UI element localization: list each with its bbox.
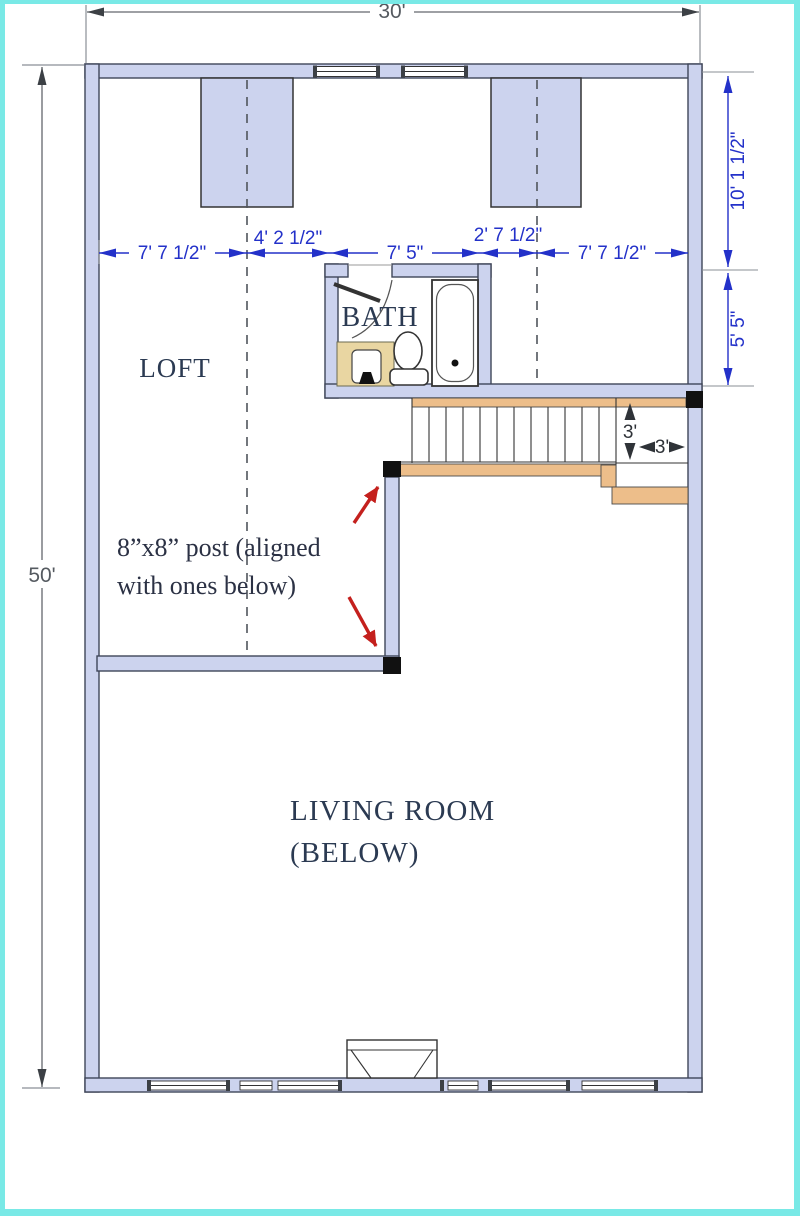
arrowhead-up xyxy=(38,67,47,85)
dimension-row: 7' 7 1/2" 4' 2 1/2" 7' 5" 2' 7 1/2" 7' 7… xyxy=(99,225,688,264)
arrowhead-right xyxy=(682,8,699,17)
dim-label-1: 7' 7 1/2" xyxy=(138,243,206,264)
window-cap xyxy=(654,1080,658,1091)
arrowhead xyxy=(724,368,733,385)
top-wall xyxy=(85,64,702,78)
post-stair xyxy=(686,391,703,408)
arrowhead xyxy=(331,249,348,258)
toilet-base xyxy=(390,369,428,385)
window-cap xyxy=(440,1080,444,1091)
door-leaf xyxy=(334,284,380,301)
arrowhead xyxy=(312,249,329,258)
dim-label-overall-width: 30' xyxy=(378,0,405,23)
arrowhead xyxy=(519,249,536,258)
dim-label-overall-height: 50' xyxy=(28,564,55,587)
stairs: 3' 3' xyxy=(399,398,688,504)
window-cap xyxy=(147,1080,151,1091)
arrowhead xyxy=(538,249,555,258)
toilet xyxy=(390,332,428,385)
bathroom: BATH xyxy=(325,264,702,398)
landing-lower-band xyxy=(612,487,688,504)
stair-treads xyxy=(429,407,599,462)
left-wall xyxy=(85,64,99,1092)
dim-label-stair-depth: 3' xyxy=(623,422,637,443)
arrowhead xyxy=(481,249,498,258)
window-cap xyxy=(313,66,317,78)
room-labels: LOFT LIVING ROOM (BELOW) xyxy=(139,353,495,869)
living-room-label-line2: (BELOW) xyxy=(290,837,419,869)
vanity-sink xyxy=(337,342,394,386)
arrowhead xyxy=(248,249,265,258)
dimension-landing-width: 3' xyxy=(639,437,685,458)
dim-label-4: 2' 7 1/2" xyxy=(474,225,542,246)
living-room-label-line1: LIVING ROOM xyxy=(290,795,495,827)
arrowhead xyxy=(671,249,688,258)
bath-top-wall-left xyxy=(325,264,348,277)
arrowhead-left xyxy=(639,442,655,453)
loft-label: LOFT xyxy=(139,353,211,383)
bath-label: BATH xyxy=(341,302,418,333)
annotation-arrow-lower xyxy=(349,597,376,646)
arrowhead xyxy=(724,250,733,267)
dimension-overall-height: 50' xyxy=(22,65,84,1088)
arrowhead xyxy=(724,76,733,93)
arrowhead xyxy=(724,273,733,290)
dim-label-3: 7' 5" xyxy=(387,243,424,264)
tub-outline xyxy=(432,280,478,386)
arrowhead-right xyxy=(669,442,685,453)
hearth-outline xyxy=(347,1040,437,1078)
window-cap xyxy=(488,1080,492,1091)
arrowhead xyxy=(99,249,116,258)
dim-label-right-lower: 5' 5" xyxy=(728,311,749,348)
window-cap xyxy=(464,66,468,78)
dimension-overall-width: 30' xyxy=(86,0,700,63)
post-upper xyxy=(383,461,401,477)
landing-step-notch xyxy=(601,465,616,487)
arrowhead-left xyxy=(87,8,104,17)
window-cap xyxy=(401,66,405,78)
loft-edge-wall-vertical xyxy=(385,477,399,658)
annotation-arrow-upper xyxy=(354,487,378,523)
stair-bottom-stringer xyxy=(399,464,616,476)
tub-drain xyxy=(452,360,459,367)
dim-label-2: 4' 2 1/2" xyxy=(254,228,322,249)
window-cap xyxy=(566,1080,570,1091)
post-lower xyxy=(383,657,401,674)
window-cap xyxy=(376,66,380,78)
hearth xyxy=(347,1040,437,1078)
dimension-right-side: 10' 1 1/2" 5' 5" xyxy=(702,72,758,386)
arrowhead-down xyxy=(625,443,636,460)
window-cap xyxy=(226,1080,230,1091)
loft-edge-wall-horizontal xyxy=(97,656,399,671)
dim-label-right-upper: 10' 1 1/2" xyxy=(728,131,749,210)
right-wall xyxy=(688,64,702,1092)
bath-right-wall xyxy=(478,264,491,398)
annotation-line2: with ones below) xyxy=(117,571,296,600)
dimension-stair-depth: 3' xyxy=(623,403,637,460)
arrowhead-down xyxy=(38,1069,47,1087)
floor-plan-page: 30' 50' xyxy=(0,0,800,1216)
window-cap xyxy=(338,1080,342,1091)
bathtub xyxy=(432,280,478,386)
arrowhead xyxy=(462,249,479,258)
right-dormer xyxy=(491,78,581,207)
stair-top-stringer xyxy=(412,398,686,407)
dormers xyxy=(201,78,581,207)
dim-label-landing-width: 3' xyxy=(655,437,669,458)
annotation-line1: 8”x8” post (aligned xyxy=(117,533,321,562)
floor-plan-drawing: 30' 50' xyxy=(0,0,800,1216)
bath-top-wall-right xyxy=(392,264,491,277)
dim-label-5: 7' 7 1/2" xyxy=(578,243,646,264)
arrowhead xyxy=(229,249,246,258)
toilet-bowl xyxy=(394,332,422,370)
